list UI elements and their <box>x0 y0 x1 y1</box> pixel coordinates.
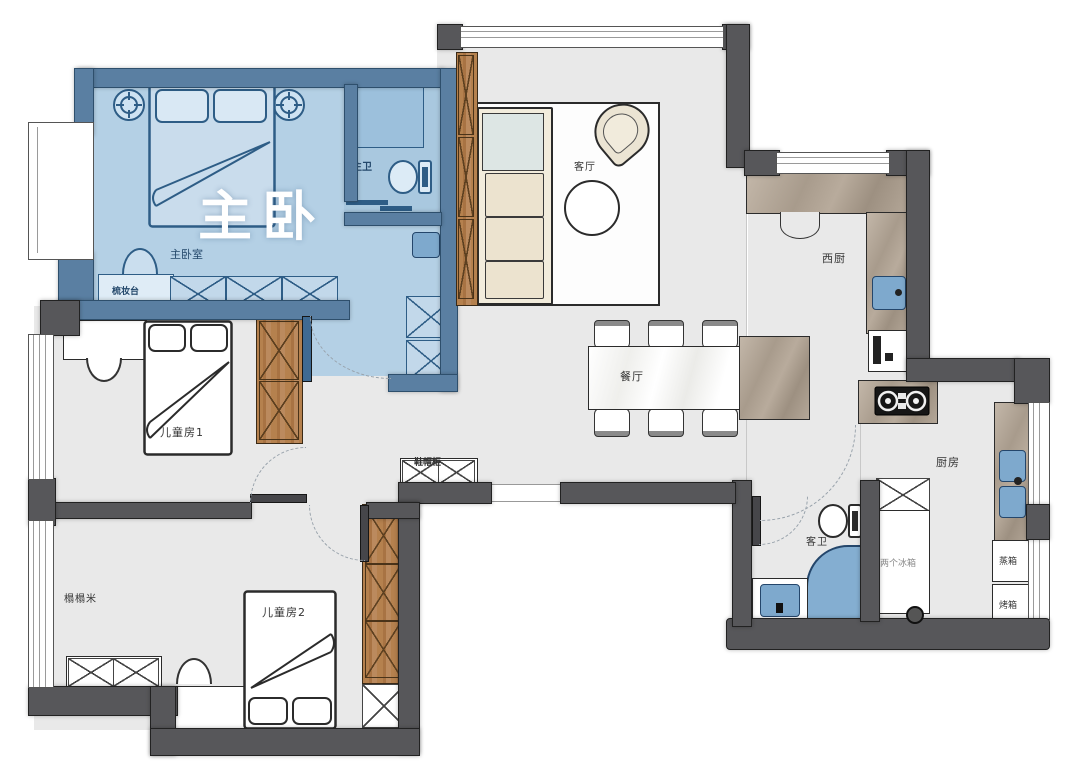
tatami-label: 榻榻米 <box>64 590 97 605</box>
armchair-seat <box>596 106 645 155</box>
wall-segment <box>388 374 458 392</box>
wall-segment <box>344 84 358 202</box>
sofa-cushion <box>485 261 544 299</box>
gas-stove <box>874 386 930 416</box>
master-toilet <box>386 158 436 196</box>
dresser-label: 梳妆台 <box>112 284 139 297</box>
kids2-label: 儿童房2 <box>262 604 306 620</box>
steam-oven-label: 蒸箱 <box>999 554 1017 567</box>
dining-chair <box>648 408 684 437</box>
wall-segment <box>906 150 930 374</box>
guest-bath-label: 客卫 <box>806 533 828 548</box>
sofa-cushion <box>485 217 544 261</box>
cabinet-cell <box>113 658 159 687</box>
wall-segment <box>906 358 1020 382</box>
tv-wall-cabinet <box>456 52 478 306</box>
tatami-cabinet <box>66 656 162 690</box>
window <box>28 334 54 480</box>
kids1-label: 儿童房1 <box>160 424 204 440</box>
door-stop <box>906 606 924 624</box>
kitchen-label: 厨房 <box>936 454 960 470</box>
wall-segment <box>398 502 420 754</box>
wall-segment <box>78 68 444 88</box>
west-kitchen-counter-side <box>866 212 910 334</box>
dining-chair <box>702 408 738 437</box>
wardrobe-cell <box>365 621 402 678</box>
master-bath-sink <box>412 232 440 258</box>
appliance-detail <box>885 353 893 361</box>
dining-chair <box>702 320 738 349</box>
wall-segment <box>726 618 1050 650</box>
ceiling-fixture-icon <box>272 88 306 122</box>
floor-edge-line <box>860 420 861 480</box>
cabinet-cell <box>458 219 474 299</box>
wall-segment <box>28 478 56 526</box>
dining-table <box>588 346 742 410</box>
cabinet-x <box>876 478 930 512</box>
west-kitchen-counter-top <box>746 172 910 214</box>
sofa-cushion <box>485 173 544 217</box>
wall-segment <box>1026 504 1050 540</box>
ceiling-fixture-icon <box>112 88 146 122</box>
dining-chair <box>594 408 630 437</box>
wall-segment <box>726 24 750 168</box>
dining-chair <box>648 320 684 349</box>
kitchen-sink-2 <box>999 486 1026 518</box>
wall-segment <box>860 480 880 622</box>
entry-threshold <box>490 484 560 502</box>
wardrobe-cell <box>259 381 299 440</box>
wall-segment <box>744 150 780 176</box>
window <box>33 127 47 253</box>
floor-edge-line <box>746 172 747 482</box>
wall-segment <box>34 502 252 519</box>
floor-plan: 客厅 餐厅 西厨 厨房 两个冰箱 蒸箱 烤箱 <box>0 0 1080 771</box>
wall-segment <box>366 502 420 519</box>
coffee-table <box>564 180 620 236</box>
shoe-cabinet-label: 鞋帽柜 <box>414 455 441 468</box>
cabinet-cell <box>458 55 474 135</box>
wall-segment <box>1014 358 1050 404</box>
faucet <box>895 289 902 296</box>
wall-segment <box>398 482 492 504</box>
island-counter <box>739 336 810 420</box>
cabinet-cell <box>68 658 114 687</box>
dining-chair <box>594 320 630 349</box>
wall-segment <box>344 212 442 226</box>
window <box>28 520 54 688</box>
sofa-chaise <box>482 113 544 171</box>
cabinet-cell <box>458 137 474 217</box>
sliding-door-bar <box>380 206 412 211</box>
coffee-machine <box>868 330 908 372</box>
wardrobe-cell <box>259 321 299 380</box>
sofa <box>477 107 553 305</box>
wall-segment <box>40 300 80 336</box>
bay-window <box>28 122 94 260</box>
window <box>776 152 890 174</box>
wardrobe-cell <box>365 564 402 621</box>
appliance-detail <box>873 336 881 364</box>
dining-label: 餐厅 <box>620 368 644 384</box>
wardrobe-1 <box>256 318 303 444</box>
window <box>460 26 724 48</box>
oven-label: 烤箱 <box>999 598 1017 611</box>
kitchen-sink-1 <box>999 450 1026 482</box>
fridges-label: 两个冰箱 <box>880 556 916 569</box>
faucet <box>1014 477 1022 485</box>
faucet <box>776 603 783 613</box>
wall-segment <box>150 728 420 756</box>
master-overlay-label: 主卧 <box>198 172 326 251</box>
living-room-label: 客厅 <box>574 158 596 173</box>
doorway-arch <box>780 212 820 239</box>
wall-segment <box>560 482 736 504</box>
west-kitchen-label: 西厨 <box>822 250 846 266</box>
west-kitchen-sink <box>872 276 906 310</box>
vanity-sink <box>760 584 800 617</box>
